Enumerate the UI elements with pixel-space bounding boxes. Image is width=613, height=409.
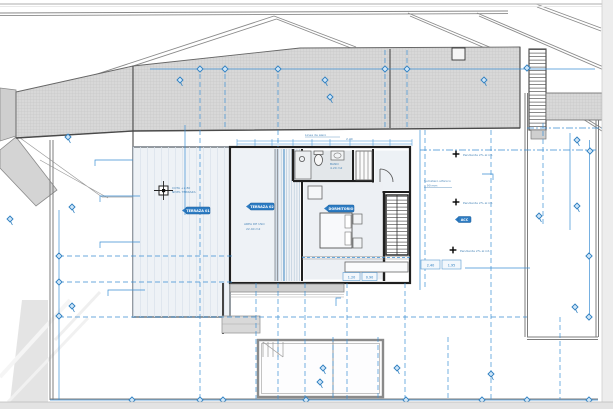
tag-deck: TERRAZA 02 xyxy=(246,203,274,210)
benchmark-label-2: NIVEL TERRAZA xyxy=(172,190,197,194)
nightstand xyxy=(353,214,362,224)
landing xyxy=(222,316,260,333)
tag-bedroom-label: DORMITORIO xyxy=(329,207,354,211)
floor-plan-drawing: COTA +2.80 NIVEL TERRAZA Pendiente 2% al… xyxy=(0,0,613,409)
pillow xyxy=(345,215,351,228)
tag-terrace: TERRAZA 01 xyxy=(182,207,210,214)
roof-stair-strip xyxy=(529,49,546,139)
cad-viewer: COTA +2.80 NIVEL TERRAZA Pendiente 2% al… xyxy=(0,0,613,409)
toilet-icon xyxy=(315,155,323,166)
drain-note-1: Sumidero sifonico xyxy=(424,179,451,183)
right-roof-band xyxy=(546,93,602,120)
dim-box-4: 0.90 xyxy=(366,276,374,280)
tag-deck-label: TERRAZA 02 xyxy=(250,205,274,209)
area-note-2: 22.40 m2 xyxy=(246,227,260,231)
chimney xyxy=(452,48,465,60)
tag-terrace-label: TERRAZA 01 xyxy=(186,209,210,213)
shower xyxy=(295,151,311,179)
nightstand xyxy=(353,238,362,248)
slope-note-1: Pendiente 2% al int. xyxy=(463,153,493,157)
eave-note: Linea de alero xyxy=(305,133,326,137)
dim-box-2: 1.95 xyxy=(448,264,456,268)
bottom-frame-strip xyxy=(0,402,613,409)
slope-note-3: Pendiente 2% al int. xyxy=(460,249,490,253)
table xyxy=(308,186,322,199)
tag-bedroom: DORMITORIO xyxy=(324,205,354,212)
eave-dim: 2.40 xyxy=(346,137,353,141)
central-unit xyxy=(230,147,410,283)
area-note-1: AREA DE USO xyxy=(244,222,265,226)
sink xyxy=(331,151,344,160)
terrace-room xyxy=(133,147,230,317)
right-frame-strip xyxy=(602,0,613,409)
slope-note-2: Pendiente 2% al int. xyxy=(463,201,493,205)
closet xyxy=(356,151,372,180)
bathroom xyxy=(295,150,355,181)
dim-box-3: 1.20 xyxy=(348,276,356,280)
drain-note-2: o 90 mm xyxy=(424,184,437,188)
pillow xyxy=(345,232,351,245)
bath-note-2: 4.20 m2 xyxy=(330,166,343,170)
dim-box-1: 2.40 xyxy=(427,264,435,268)
stairs xyxy=(386,195,408,255)
tag-access-label: ACC xyxy=(461,218,469,222)
